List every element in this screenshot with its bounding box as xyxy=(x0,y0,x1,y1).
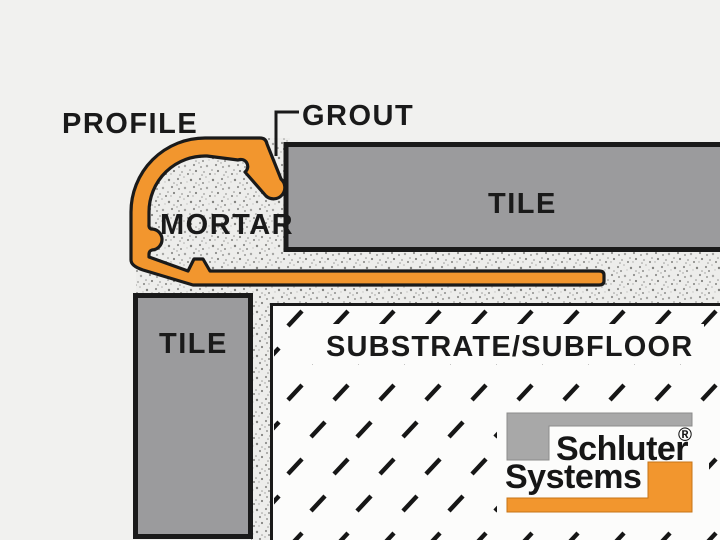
tile-left-label: TILE xyxy=(159,328,228,360)
schluter-logo: Schluter ® Systems xyxy=(497,402,709,520)
profile-label: PROFILE xyxy=(62,108,198,140)
substrate-label: SUBSTRATE/SUBFLOOR xyxy=(326,331,693,363)
tile-top-label: TILE xyxy=(488,188,557,220)
mortar-label: MORTAR xyxy=(160,209,294,241)
grout-label: GROUT xyxy=(302,100,414,132)
diagram-stage: SUBSTRATE/SUBFLOOR Schluter ® Systems PR… xyxy=(0,0,720,540)
profile-installation-diagram: SUBSTRATE/SUBFLOOR Schluter ® Systems PR… xyxy=(0,0,720,540)
registered-mark-icon: ® xyxy=(678,425,692,446)
logo-line2: Systems xyxy=(505,458,641,496)
